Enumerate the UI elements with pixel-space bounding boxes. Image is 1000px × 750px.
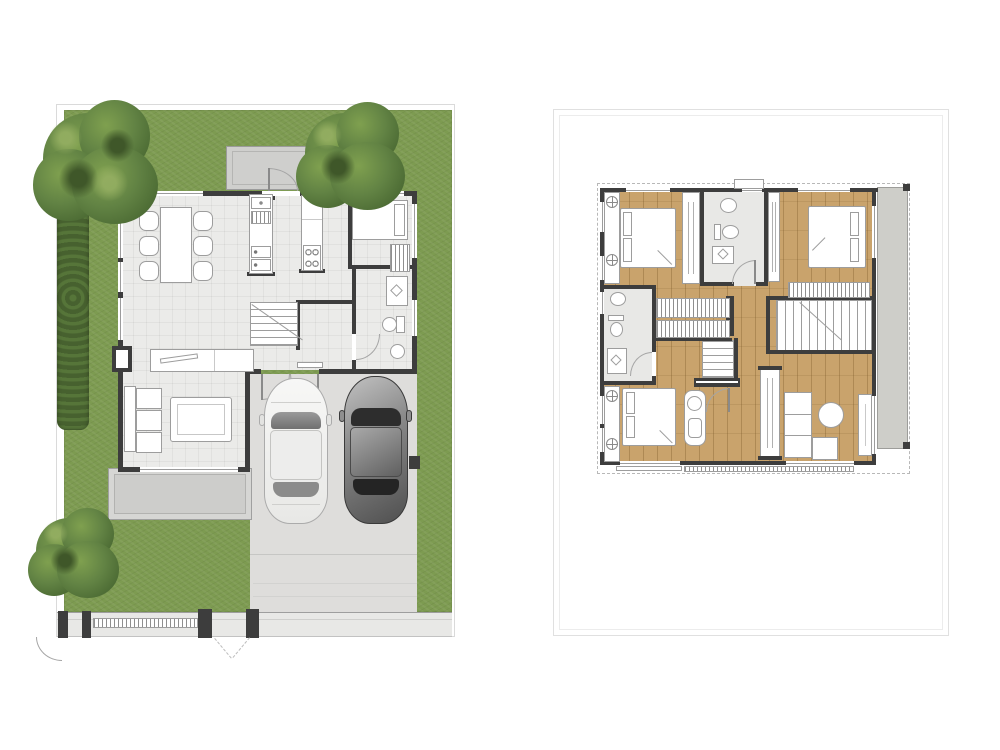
- fence-post: [82, 611, 91, 638]
- car-roof: [270, 430, 322, 480]
- entry-door-leaf: [261, 374, 263, 400]
- dining-chair: [193, 211, 213, 231]
- wall-living-bottom-l: [118, 467, 140, 472]
- carport-edge-line: [250, 554, 417, 555]
- tree: [296, 102, 410, 216]
- stair-rail-line: [696, 381, 738, 383]
- closet-bed3: [682, 192, 700, 284]
- wall-bath-left-t: [604, 285, 656, 289]
- vanity-tray: [688, 418, 702, 438]
- wall-stairwell-left: [766, 296, 770, 354]
- sofa-cushion: [784, 392, 812, 415]
- bed-pillow: [850, 238, 859, 262]
- hall-closet: [656, 298, 730, 318]
- sofa-back: [124, 386, 136, 452]
- page-background: [0, 0, 1000, 750]
- hall-closet: [656, 320, 730, 338]
- window-bed2-top: [798, 188, 850, 192]
- bath-door-leaf: [754, 260, 756, 284]
- window-bath-right: [412, 300, 417, 336]
- divider-cap: [758, 366, 782, 370]
- kitchen-vent-hatch: [251, 211, 271, 224]
- car-hood-line: [271, 402, 321, 403]
- window-right-a: [872, 206, 876, 258]
- wardrobe-symbol: [606, 390, 618, 402]
- fence-post: [58, 611, 68, 638]
- planter-box: [112, 346, 132, 372]
- stove: [303, 245, 321, 271]
- fence-post: [246, 609, 259, 638]
- window-family-bottom: [786, 461, 854, 465]
- carport-column: [409, 456, 420, 469]
- wall-stair-h: [296, 300, 352, 304]
- round-table: [818, 402, 844, 428]
- sofa-cushion: [136, 388, 162, 409]
- patio-door-leaf: [268, 168, 270, 191]
- fence-post: [198, 609, 212, 638]
- window-bed3-top: [626, 188, 670, 192]
- tree-highlight: [312, 120, 342, 150]
- wall-under-closet: [656, 338, 732, 341]
- kitchen-drawer: [251, 246, 271, 258]
- porch-inner: [114, 474, 246, 514]
- window-left-2: [118, 262, 123, 292]
- roof-anchor: [903, 184, 910, 191]
- divider-cap: [758, 456, 782, 460]
- wash-basin: [610, 292, 626, 306]
- sliding-door-living: [140, 467, 238, 472]
- kitchen-drawer: [251, 259, 271, 271]
- car-trunk-line: [272, 504, 320, 505]
- toilet-tank: [714, 224, 721, 240]
- wall-bath-top-b1: [700, 282, 734, 286]
- tree: [28, 508, 123, 603]
- wash-basin: [720, 198, 737, 213]
- car-mirror: [326, 414, 332, 426]
- window-sill: [616, 466, 682, 471]
- wall-living-right: [245, 369, 250, 472]
- window-master-bottom: [620, 461, 680, 465]
- car-white: [264, 378, 328, 524]
- tree-shade: [51, 546, 80, 575]
- sofa-cushion: [784, 414, 812, 436]
- bed-pillow: [623, 212, 632, 236]
- wall-bath-top-l: [700, 188, 704, 286]
- window-left-3: [118, 298, 123, 340]
- car-mirror: [259, 414, 265, 426]
- car-windshield: [271, 412, 321, 429]
- dining-chair: [139, 261, 159, 281]
- window-left-c: [600, 292, 604, 314]
- car-roof: [350, 427, 402, 477]
- sofa-cushion: [136, 410, 162, 431]
- bed-pillow: [626, 392, 635, 414]
- wardrobe-symbol: [606, 438, 618, 450]
- car-dark: [344, 376, 408, 524]
- opening-bath-left-door: [652, 352, 656, 376]
- driveway-line: [253, 583, 417, 584]
- car-windshield: [351, 408, 401, 426]
- wall-entry-right: [319, 369, 417, 374]
- wall-living-bottom-r: [238, 467, 250, 472]
- stairwell: [776, 300, 872, 352]
- toilet-tank: [608, 315, 624, 321]
- roof-anchor: [903, 442, 910, 449]
- car-rear-glass: [353, 479, 399, 495]
- window-right-b: [872, 396, 876, 454]
- coffee-table-inner: [177, 404, 225, 435]
- window-utility-right: [412, 204, 417, 258]
- car-mirror: [406, 410, 412, 422]
- first-floor-plan: [0, 0, 500, 750]
- fence-infill: [93, 618, 198, 628]
- second-floor-plan: [500, 0, 1000, 750]
- shoe-bench: [297, 362, 323, 368]
- toilet-bowl: [382, 317, 397, 332]
- vanity-stool: [687, 396, 702, 411]
- gate-dash: [214, 638, 231, 659]
- sofa-cushion: [812, 437, 838, 460]
- dining-chair: [193, 236, 213, 256]
- wall-stairwell-bottom: [766, 350, 876, 354]
- sofa-cushion: [136, 432, 162, 453]
- wash-basin: [390, 344, 405, 359]
- sofa-cushion: [784, 435, 812, 458]
- master-door-leaf: [728, 388, 730, 412]
- dining-table: [160, 207, 192, 283]
- roof-strip: [877, 187, 908, 449]
- wall-stair2-right: [734, 338, 738, 380]
- tree-highlight: [49, 121, 83, 155]
- car-mirror: [339, 410, 345, 422]
- toilet-bowl: [610, 322, 623, 337]
- toilet-bowl: [722, 225, 739, 239]
- wall-bath-left-b: [604, 381, 656, 385]
- wardrobe-bed2: [788, 282, 870, 298]
- tree: [33, 100, 163, 230]
- dining-chair: [193, 261, 213, 281]
- dining-chair: [139, 236, 159, 256]
- wardrobe-symbol: [606, 254, 618, 266]
- bed-pillow: [623, 238, 632, 262]
- gate-dash: [233, 637, 250, 658]
- divider-closet: [760, 368, 780, 458]
- tv-console-2: [858, 394, 872, 456]
- kitchen-sink: [251, 197, 271, 209]
- closet-bed2: [768, 192, 780, 282]
- utility-shelf-rack: [390, 244, 410, 272]
- window-sill: [684, 466, 854, 472]
- bed-pillow: [626, 416, 635, 438]
- pedestrian-gate-arc: [36, 637, 62, 661]
- balcony-ledge: [734, 179, 764, 189]
- stair-upper-run: [702, 340, 734, 378]
- wall-bath-top-b2: [756, 282, 768, 286]
- bed-pillow: [850, 212, 859, 236]
- driveway-line: [253, 596, 417, 597]
- tree-highlight: [43, 521, 68, 546]
- toilet-tank: [396, 316, 405, 333]
- wardrobe-symbol: [606, 196, 618, 208]
- car-rear-glass: [273, 482, 319, 497]
